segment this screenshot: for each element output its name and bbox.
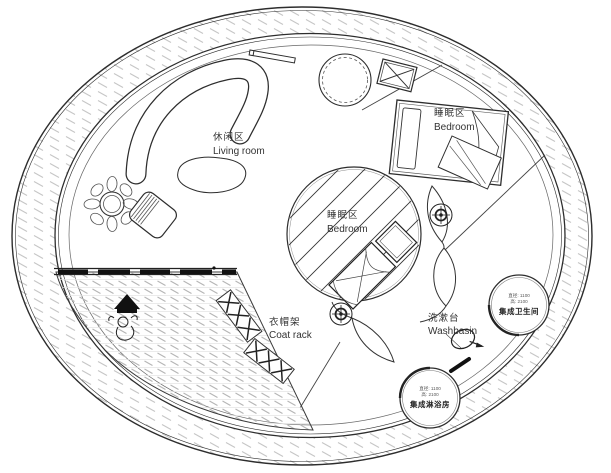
plant-icon [84, 176, 140, 232]
column-marker-icon [430, 204, 452, 226]
shower-pod-dim1: 直径: 1100 [419, 385, 441, 391]
glazed-wall [54, 269, 237, 275]
washbasin-label-en: Washbasin [428, 326, 477, 337]
floor-plan-canvas: 直径: 1100 高: 2100 集成卫生间 直径: 1100 高: 2100 … [0, 0, 611, 473]
living-room-label-en: Living room [213, 146, 265, 157]
wall-shelf-icon [249, 50, 295, 63]
round-table-icon [319, 54, 371, 106]
bedroom-center-label-en: Bedroom [327, 224, 368, 235]
bedroom-upper-label-en: Bedroom [434, 122, 475, 133]
door-dash-icon [451, 359, 469, 371]
coat-rack-label-en: Coat rack [269, 330, 313, 341]
bedroom-upper-label-zh: 睡眠区 [434, 107, 466, 119]
vent-box-icon [377, 59, 417, 92]
rug-icon [178, 157, 246, 193]
washbasin-label-zh: 洗漱台 [428, 312, 460, 324]
shower-pod-dim2: 高: 2100 [421, 391, 439, 398]
shower-pod: 直径: 1100 高: 2100 集成淋浴房 [400, 368, 460, 428]
bedroom-center-label-zh: 睡眠区 [327, 209, 359, 221]
coat-rack-label-zh: 衣帽架 [269, 316, 301, 328]
bathroom-pod: 直径: 1100 高: 2100 集成卫生间 [489, 275, 549, 335]
shower-pod-label: 集成淋浴房 [409, 399, 450, 409]
floor-plan-drawing: 直径: 1100 高: 2100 集成卫生间 直径: 1100 高: 2100 … [0, 0, 611, 473]
column-marker-icon [330, 303, 352, 325]
reference-dot [212, 266, 215, 269]
living-room-label-zh: 休闲区 [213, 131, 245, 143]
bathroom-pod-label: 集成卫生间 [498, 306, 539, 316]
chair-icon [127, 189, 179, 240]
bathroom-pod-dim2: 高: 2100 [510, 298, 528, 305]
bathroom-pod-dim1: 直径: 1100 [508, 292, 530, 298]
